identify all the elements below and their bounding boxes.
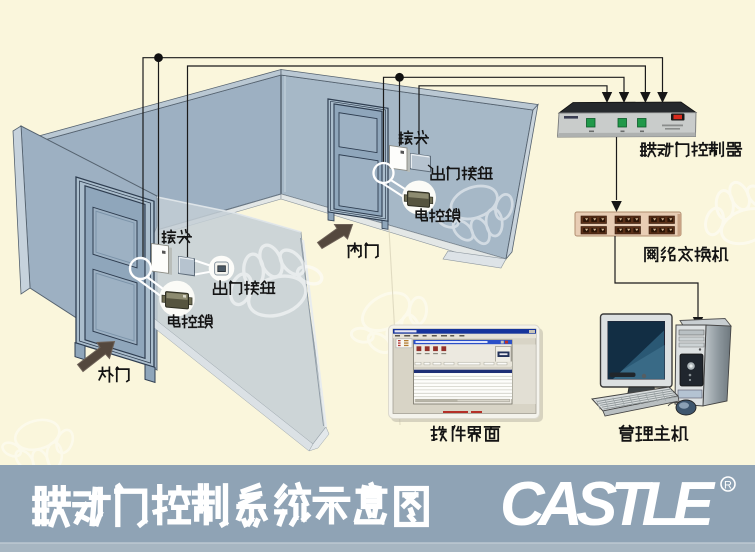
svg-text:R: R xyxy=(724,480,732,492)
svg-text:CASTLE: CASTLE xyxy=(500,470,716,539)
